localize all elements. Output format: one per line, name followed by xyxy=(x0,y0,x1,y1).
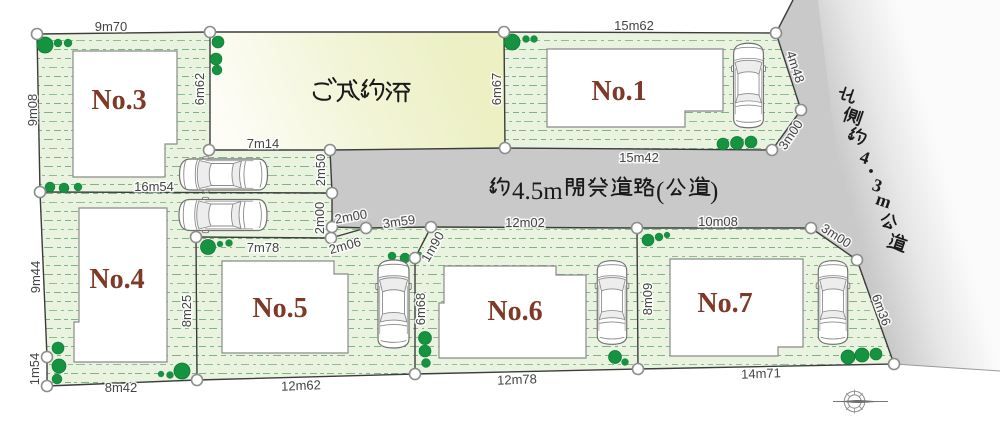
svg-text:No.7: No.7 xyxy=(697,288,752,319)
svg-text:7m78: 7m78 xyxy=(247,240,280,255)
svg-text:8m25: 8m25 xyxy=(179,295,194,328)
svg-text:8m42: 8m42 xyxy=(105,380,138,395)
svg-text:16m54: 16m54 xyxy=(134,179,174,194)
svg-text:9m08: 9m08 xyxy=(25,94,40,127)
svg-text:10m08: 10m08 xyxy=(698,214,738,229)
svg-text:4.5m: 4.5m xyxy=(512,178,563,205)
svg-text:1m54: 1m54 xyxy=(27,353,42,386)
svg-text:No.3: No.3 xyxy=(91,85,146,116)
svg-text:2m50: 2m50 xyxy=(313,154,328,187)
svg-text:9m70: 9m70 xyxy=(95,19,128,34)
svg-text:6m68: 6m68 xyxy=(413,293,428,326)
svg-text:14m71: 14m71 xyxy=(741,365,781,381)
svg-text:): ) xyxy=(710,178,718,205)
svg-text:8m09: 8m09 xyxy=(640,283,655,316)
svg-text:6m67: 6m67 xyxy=(489,73,504,106)
svg-text:15m62: 15m62 xyxy=(614,18,654,33)
svg-text:12m02: 12m02 xyxy=(505,215,545,230)
svg-text:12m78: 12m78 xyxy=(497,371,537,387)
svg-text:15m42: 15m42 xyxy=(619,150,659,165)
svg-text:6m62: 6m62 xyxy=(192,73,207,106)
svg-text:No.6: No.6 xyxy=(487,296,542,327)
svg-text:(: ( xyxy=(656,178,664,205)
svg-text:No.1: No.1 xyxy=(591,76,646,107)
svg-text:2m00: 2m00 xyxy=(312,202,327,235)
svg-text:7m14: 7m14 xyxy=(247,136,280,151)
svg-text:No.5: No.5 xyxy=(252,293,307,324)
svg-text:12m62: 12m62 xyxy=(281,377,321,393)
svg-text:9m44: 9m44 xyxy=(28,261,43,294)
svg-text:No.4: No.4 xyxy=(89,264,144,295)
